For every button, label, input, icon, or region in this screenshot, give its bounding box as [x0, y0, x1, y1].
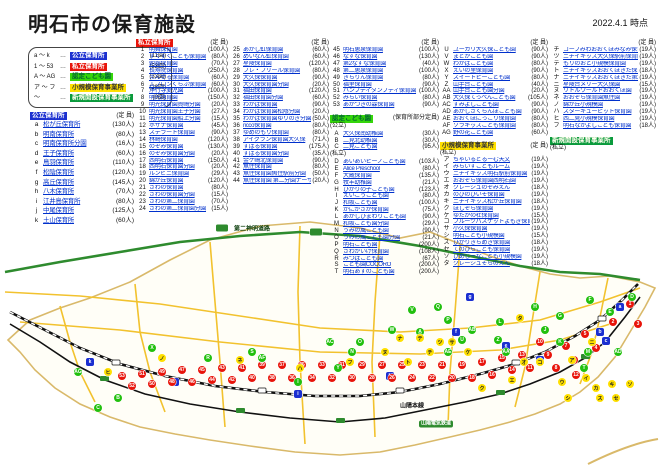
map-marker-pri: 23: [418, 361, 426, 369]
map-marker-sho: ク: [478, 384, 486, 392]
facility-name-link[interactable]: 錦が丘保育園: [149, 178, 207, 185]
facility-id: 8: [136, 95, 149, 102]
facility-capacity: (80人): [422, 75, 439, 82]
facility-capacity: (18人): [531, 261, 548, 268]
facility-name-link[interactable]: もりのおと小規模保育園: [563, 61, 638, 68]
map-marker-sho: ス: [596, 394, 604, 402]
facility-row: Yスイートピーこども園(80人): [440, 75, 548, 82]
facility-name-link[interactable]: あかし虹保育園: [243, 47, 311, 54]
facility-row: セてのひらこども保育園(19人): [440, 247, 548, 254]
facility-name-link[interactable]: クレーシュそらのえん: [453, 261, 530, 268]
legend-range: a ～ k: [34, 51, 60, 62]
legend-range: 1 ～ 53: [34, 62, 60, 73]
facility-id: R: [330, 256, 343, 263]
facility-row: 35わかば保育園ゆりのき分園(50人): [230, 116, 329, 123]
facility-name-link[interactable]: わかば保育園: [243, 102, 311, 109]
facility-name-link[interactable]: ニチイキッズ松が丘保育園: [453, 199, 530, 206]
facility-row: P明石こども園(200人): [330, 242, 439, 249]
map-marker-pri: 39: [258, 361, 266, 369]
facility-capacity: (45人): [211, 123, 228, 130]
facility-name-link[interactable]: 山手台こども園分園: [453, 88, 530, 95]
facility-capacity: (60人): [531, 130, 548, 137]
map-marker-sho: サ: [448, 338, 456, 346]
facility-name-link[interactable]: 野の花こども園: [453, 130, 530, 137]
facility-row: 29大久保保育園(90人): [230, 75, 329, 82]
facility-name-link[interactable]: ニチイキッズおおくぼきた第2保育園: [563, 75, 638, 82]
facility-name-link[interactable]: ゆたかの杜保育園: [453, 213, 530, 220]
facility-id: I: [330, 193, 343, 200]
map-marker-sho: ヒ: [104, 368, 112, 376]
facility-capacity: (175人): [309, 144, 329, 151]
facility-name-link[interactable]: ステラート保育園: [149, 130, 210, 137]
facility-name-link[interactable]: 金ケ崎北保育園: [243, 158, 311, 165]
map-marker-pub: f: [452, 328, 460, 336]
facility-name-link[interactable]: あいあいピーノこども園: [343, 159, 418, 166]
facility-id: G: [330, 180, 343, 187]
map-marker-pri: 17: [478, 358, 486, 366]
facility-name-link[interactable]: 福里保育園: [343, 82, 421, 89]
facility-name-link[interactable]: コープみわおおくぼみなみ保育園: [563, 47, 638, 54]
map-marker-nin: I: [294, 378, 302, 386]
map-marker-sho: ナ: [396, 334, 404, 342]
facility-capacity: (90人): [422, 214, 439, 221]
facility-name-link[interactable]: 鳥羽保育所: [43, 158, 112, 168]
facility-name-link[interactable]: えんぜる保育園: [149, 75, 210, 82]
facility-name-link[interactable]: えいの里保育園: [453, 68, 530, 75]
facility-name-link[interactable]: 王子保育所: [43, 149, 115, 159]
map-marker-sho: テ: [416, 334, 424, 342]
facility-name-link[interactable]: 和坂こども園分園: [343, 221, 421, 228]
facility-id: f: [30, 168, 43, 178]
facility-capacity: (70人): [211, 61, 228, 68]
facility-id: 38: [230, 137, 243, 144]
facility-name-link[interactable]: 二見こども園: [343, 144, 421, 151]
facility-name-link[interactable]: フルーツバスケットよもぎ保育園: [453, 219, 530, 226]
facility-name-link[interactable]: 林崎保育園: [149, 137, 207, 144]
facility-name-link[interactable]: 魚住保育園魚住駅前分園: [243, 171, 311, 178]
facility-name-link[interactable]: 明光保育園: [149, 95, 207, 102]
facility-id: セ: [440, 247, 453, 254]
facility-row: C二見こども園(95人): [330, 144, 439, 151]
facility-name-link[interactable]: 明光保育園貴崎分園: [149, 102, 210, 109]
facility-capacity: (70人): [116, 187, 134, 197]
facility-id: Z: [440, 82, 453, 89]
facility-name-link[interactable]: 明石恵泉保育園: [343, 47, 418, 54]
map-marker-pri: 16: [488, 371, 496, 379]
facility-id: 46: [330, 54, 343, 61]
facility-name-link[interactable]: アイグラン保育園大久保: [243, 137, 311, 144]
map-marker-pri: 52: [128, 382, 136, 390]
facility-name-link[interactable]: 大久保保育園: [243, 75, 311, 82]
facility-capacity: (20人): [211, 151, 228, 158]
facility-name-link[interactable]: かにがさか保育園: [343, 207, 421, 214]
facility-name-link[interactable]: 明石なかよしこども保育園: [563, 123, 638, 130]
facility-id: d: [30, 149, 43, 159]
capacity-header: (定 員): [116, 112, 134, 120]
facility-capacity: (135人): [419, 173, 439, 180]
facility-id: サ: [440, 226, 453, 233]
map-marker-nin: W: [388, 326, 396, 334]
facility-capacity: (100人): [419, 47, 439, 54]
map-marker-pri: 51: [138, 370, 146, 378]
map-marker-pri: 24: [408, 374, 416, 382]
facility-row: 3朝霧保育園(70人): [136, 61, 228, 68]
facility-name-link[interactable]: うみの風こども園: [343, 228, 421, 235]
map-marker-nin: B: [114, 394, 122, 402]
facility-row: Oうみの風こども園分園(21人): [330, 235, 439, 242]
map-marker-sho: コ: [536, 358, 544, 366]
facility-name-link[interactable]: 朝霧保育園: [149, 61, 210, 68]
facility-name-link[interactable]: のびのびいそ保育園: [453, 192, 530, 199]
facility-name-link[interactable]: フレ・フリール保育園: [243, 68, 311, 75]
facility-row: 5えんぜる保育園(60人): [136, 75, 228, 82]
facility-id: 30: [230, 82, 243, 89]
facility-name-link[interactable]: 明南保育所: [43, 130, 115, 140]
facility-name-link[interactable]: こども園COCORO: [343, 262, 418, 269]
facility-capacity: (200人): [419, 269, 439, 276]
map-marker-pub: k: [86, 358, 94, 366]
facility-row: 26めいなん虹保育園(60人): [230, 54, 329, 61]
facility-id: W: [440, 61, 453, 68]
facility-row: 13ステラート保育園(90人): [136, 130, 228, 137]
facility-name-link[interactable]: さわの第二保育園: [149, 199, 210, 206]
facility-name-link[interactable]: 牧羊幼稚園: [343, 180, 421, 187]
facility-name-link[interactable]: 明石こども園: [343, 242, 418, 249]
facility-id: B: [330, 138, 343, 145]
section-nintei-col4: (定 員) Uユーカリ大久保こども園(90人)Vまどかこども園(90人)Wわかば…: [440, 39, 548, 268]
facility-id: 20: [136, 178, 149, 185]
facility-name-link[interactable]: エプロンくらぶ保育園: [149, 82, 210, 89]
facility-name-link[interactable]: 大蔵保育園: [343, 173, 418, 180]
facility-name-link[interactable]: てのひらこども保育園: [453, 247, 530, 254]
facility-name-link[interactable]: みつばこども園: [343, 256, 421, 263]
facility-id: 2: [136, 54, 149, 61]
facility-row: 16のぞみ保育園分園(20人): [136, 151, 228, 158]
facility-name-link[interactable]: 明光保育園王子分園: [149, 109, 210, 116]
map-marker-pri: 44: [208, 376, 216, 384]
facility-row: 24さわの第二保育園分園(15人): [136, 206, 228, 213]
facility-name-link[interactable]: 山手台こども園: [453, 82, 530, 89]
facility-name-link[interactable]: 魚住保育園: [243, 164, 311, 171]
facility-name-link[interactable]: スターキューピット保育園: [563, 109, 638, 116]
map-marker-nin: G: [556, 312, 564, 320]
map-marker-pri: 22: [428, 374, 436, 382]
facility-name-link[interactable]: 和坂こども園: [343, 200, 418, 207]
new-facility-header: 新規開設保育事業所: [550, 137, 613, 145]
facility-name-link[interactable]: ニチイキッズおおくぼきた保育園: [563, 68, 638, 75]
map-marker-sho: カ: [592, 384, 600, 392]
map-marker-pri: 21: [438, 361, 446, 369]
facility-row: Lあかしひまわりこども園(90人): [330, 214, 439, 221]
facility-id: 40: [230, 151, 243, 158]
facility-capacity: (90人): [211, 130, 228, 137]
facility-id: 1: [136, 47, 149, 54]
shokibo-header: 小規模保育事業所: [440, 142, 496, 150]
facility-capacity: (80人): [531, 75, 548, 82]
facility-id: 22: [136, 192, 149, 199]
facility-name-link[interactable]: 魚住保育園 第二分園ナーサリー: [243, 178, 311, 185]
map-marker-pri: 48: [168, 378, 176, 386]
facility-name-link[interactable]: あかしひまわりこども園: [343, 214, 421, 221]
facility-id: 11: [136, 116, 149, 123]
map-marker-sho: セ: [612, 394, 620, 402]
facility-id: F: [330, 173, 343, 180]
facility-name-link[interactable]: おおぞら保育園西明石園: [453, 178, 530, 185]
facility-id: AC: [440, 102, 453, 109]
facility-capacity: (19人): [639, 116, 656, 123]
facility-name-link[interactable]: ニチイキッズ大久保駅前保育園: [563, 54, 638, 61]
facility-row: フ明石なかよしこども保育園(18人): [550, 123, 656, 130]
legend-category-label: 新規開設保育事業所: [70, 94, 133, 102]
facility-id: ト: [550, 68, 563, 75]
facility-name-link[interactable]: 明舞保育園: [149, 47, 207, 54]
facility-capacity: (90人): [422, 102, 439, 109]
facility-name-link[interactable]: まどかこども園: [453, 54, 530, 61]
facility-name-link[interactable]: ひかりきらめき保育園: [453, 240, 530, 247]
facility-name-link[interactable]: さわの保育園: [149, 185, 210, 192]
facility-name-link[interactable]: 錦が丘小規模園: [563, 102, 638, 109]
facility-name-link[interactable]: のぞみ保育園: [149, 144, 207, 151]
map-marker-nin: T: [580, 364, 588, 372]
facility-row: 21さわの保育園(80人): [136, 185, 228, 192]
facility-capacity: (50人): [312, 116, 329, 123]
facility-id: 19: [136, 171, 149, 178]
facility-name-link[interactable]: めいなん虹保育園: [243, 54, 311, 61]
facility-name-link[interactable]: さわの保育園分園: [149, 192, 210, 199]
legend-category-label: 公立保育所: [70, 52, 107, 60]
facility-name-link[interactable]: ホザナ保育園: [149, 123, 210, 130]
facility-row: AG野の花こども園(60人): [440, 130, 548, 137]
facility-name-link[interactable]: 星陵保育園: [243, 61, 308, 68]
facility-id: 37: [230, 130, 243, 137]
facility-row: f松陰保育所(120人): [30, 168, 134, 178]
facility-name-link[interactable]: 西明石保育園: [149, 158, 207, 165]
map-marker-pri: 19: [458, 361, 466, 369]
facility-row: 48第二恵泉保育園(100人): [330, 68, 439, 75]
facility-id: 18: [136, 164, 149, 171]
facility-name-link[interactable]: 松陰保育所: [43, 168, 111, 178]
facility-name-link[interactable]: 大久保南幼稚園: [343, 131, 421, 138]
facility-capacity: (60人): [116, 216, 134, 226]
facility-name-link[interactable]: クレーシュのぞみえん: [453, 185, 530, 192]
facility-name-link[interactable]: わかば保育園ゆりのき分園: [243, 116, 311, 123]
map-marker-sho: シ: [564, 394, 572, 402]
map-marker-pri: 3: [634, 320, 642, 328]
facility-name-link[interactable]: 中尾保育所: [43, 206, 111, 216]
facility-name-link[interactable]: みらい保育園: [343, 95, 421, 102]
facility-name-link[interactable]: 松が丘保育所: [43, 120, 111, 130]
facility-name-link[interactable]: 浄行寺愛児園: [149, 88, 207, 95]
map-marker-pri: 37: [278, 361, 286, 369]
facility-name-link[interactable]: 八木保育所: [43, 187, 115, 197]
facility-row: 39すばる保育園(175人): [230, 144, 329, 151]
map-marker-pri: 53: [118, 372, 126, 380]
facility-name-link[interactable]: えいこうこども園: [343, 193, 421, 200]
facility-name-link[interactable]: 福田保育園分園: [243, 95, 311, 102]
map-marker-pri: 29: [358, 361, 366, 369]
facility-id: g: [30, 178, 43, 188]
facility-id: 3: [136, 61, 149, 68]
facility-capacity: (100人): [208, 47, 228, 54]
facility-name-link[interactable]: 土山保育所: [43, 216, 115, 226]
facility-name-link[interactable]: ユーカリ大久保こども園: [453, 47, 530, 54]
facility-name-link[interactable]: 星陵台メリー大久保園: [563, 82, 638, 89]
facility-name-link[interactable]: すばる保育園: [243, 144, 308, 151]
map-marker-pri: 50: [148, 380, 156, 388]
facility-id: ア: [440, 157, 453, 164]
facility-name-link[interactable]: すくすくこども保育園: [149, 54, 210, 61]
facility-id: 32: [230, 95, 243, 102]
facility-id: 14: [136, 137, 149, 144]
facility-name-link[interactable]: すみよしこども園: [453, 102, 530, 109]
facility-name-link[interactable]: 小久保保育園: [453, 226, 530, 233]
facility-name-link[interactable]: ひかりの子こども園: [343, 187, 418, 194]
facility-row: 14林崎保育園(120人): [136, 137, 228, 144]
facility-name-link[interactable]: 大久保てっぺんこども園: [453, 95, 527, 102]
facility-name-link[interactable]: ちゃいるどるーむ天文: [453, 157, 530, 164]
nintei-note: (保育所部分定員): [393, 115, 439, 123]
map-marker-sho: オ: [520, 358, 528, 366]
facility-id: 27: [230, 61, 243, 68]
facility-capacity: (95人): [422, 144, 439, 151]
facility-id: 4: [136, 68, 149, 75]
facility-name-link[interactable]: 高丘保育所: [43, 178, 111, 188]
facility-name-link[interactable]: ニチイキッズ明石駅前保育園: [453, 171, 530, 178]
facility-row: 4長寿院保育園(250人): [136, 68, 228, 75]
facility-id: AE: [440, 116, 453, 123]
facility-capacity: (18人): [531, 199, 548, 206]
facility-name-link[interactable]: ほしぞら保育園: [453, 206, 530, 213]
facility-row: 37ゆめのもり保育園(80人): [230, 130, 329, 137]
facility-row: i江井島保育所(80人): [30, 197, 134, 207]
facility-name-link[interactable]: 第2なずな保育園: [343, 61, 421, 68]
facility-row: AFソラキッズこども保育園(80人): [440, 123, 548, 130]
facility-id: 15: [136, 144, 149, 151]
facility-name-link[interactable]: 福田保育園: [243, 88, 308, 95]
facility-id: K: [330, 207, 343, 214]
facility-name-link[interactable]: わかばこども園: [453, 61, 530, 68]
facility-name-link[interactable]: わかば保育園松陰分園: [243, 109, 311, 116]
facility-name-link[interactable]: 大久保保育園分園: [243, 82, 311, 89]
facility-name-link[interactable]: ルンビニ保育園: [149, 171, 210, 178]
facility-name-link[interactable]: 明石あすのこども園: [343, 269, 418, 276]
facility-row: テもりのおと小規模保育園(19人): [550, 61, 656, 68]
map-marker-pri: 42: [228, 376, 236, 384]
facility-capacity: (200人): [419, 242, 439, 249]
facility-name-link[interactable]: なずな保育園: [343, 54, 418, 61]
facility-name-link[interactable]: うみの風こども園分園: [343, 235, 421, 242]
map-marker-nin: Z: [494, 336, 502, 344]
facility-name-link[interactable]: おおくぼにっこり保育園: [453, 116, 530, 123]
facility-capacity: (125人): [112, 206, 134, 216]
facility-id: Q: [330, 249, 343, 256]
facility-capacity: (15人): [211, 206, 228, 213]
facility-row: 27星陵保育園(120人): [230, 61, 329, 68]
facility-id: 5: [136, 75, 149, 82]
facility-capacity: (80人): [312, 68, 329, 75]
facility-capacity: (108人): [419, 249, 439, 256]
facility-capacity: (80人): [211, 54, 228, 61]
facility-name-link[interactable]: Alice Preschool: [343, 166, 421, 173]
facility-name-link[interactable]: 長寿院保育園: [149, 68, 207, 75]
facility-name-link[interactable]: ハンプティダンプティ保育園: [343, 88, 418, 95]
facility-name-link[interactable]: あかしさくらんぼこども園: [453, 109, 530, 116]
facility-capacity: (80人): [211, 185, 228, 192]
facility-capacity: (71人): [312, 137, 329, 144]
facility-id: 28: [230, 68, 243, 75]
facility-name-link[interactable]: おおぞら保育園魚住園: [563, 95, 638, 102]
facility-name-link[interactable]: きらりん保育園: [343, 75, 421, 82]
facility-row: Vまどかこども園(90人): [440, 54, 548, 61]
capacity-header: (定 員): [330, 39, 439, 47]
facility-name-link[interactable]: さわの第二保育園分園: [149, 206, 210, 213]
map-marker-nin: F: [586, 296, 594, 304]
facility-name-link[interactable]: ソラキッズこども保育園: [453, 123, 530, 130]
facility-id: キ: [440, 199, 453, 206]
facility-name-link[interactable]: あかつきの森保育園: [343, 102, 421, 109]
facility-capacity: (60人): [211, 75, 228, 82]
facility-name-link[interactable]: 二見北幼稚園: [343, 138, 421, 145]
facility-capacity: (30人): [422, 131, 439, 138]
facility-id: オ: [440, 185, 453, 192]
facility-id: 26: [230, 54, 243, 61]
facility-name-link[interactable]: すばる保育園分園: [243, 151, 311, 158]
public-header: 公立保育所: [30, 112, 67, 120]
facility-name-link[interactable]: さわがいけ保育園: [343, 249, 418, 256]
facility-name-link[interactable]: 第二恵泉保育園: [343, 68, 418, 75]
facility-id: 51: [330, 88, 343, 95]
facility-capacity: (60人): [312, 54, 329, 61]
page: 明石市の保育施設 2022.4.1 時点 a ～ k…公立保育所(11園)1 ～…: [0, 0, 660, 467]
facility-name-link[interactable]: リトルワールドおおくぼ園: [563, 88, 638, 95]
facility-id: 44: [230, 178, 243, 185]
map-marker-pub: g: [466, 293, 474, 301]
facility-capacity: (19人): [531, 171, 548, 178]
map-marker-nin: AC: [326, 338, 334, 346]
facility-id: 23: [136, 199, 149, 206]
facility-id: 39: [230, 144, 243, 151]
facility-name-link[interactable]: 西明石保育園分園: [149, 164, 210, 171]
facility-name-link[interactable]: みらいずこどもルーム: [453, 164, 530, 171]
map-marker-sho: タ: [516, 314, 524, 322]
facility-capacity: (60人): [116, 149, 134, 159]
facility-row: ナニチイキッズおおくぼきた第2保育園(19人): [550, 75, 656, 82]
map-marker-pri: 30: [348, 374, 356, 382]
facility-row: タクレーシュそらのえん(18人): [440, 261, 548, 268]
facility-row: b明南保育所(80人): [30, 130, 134, 140]
facility-name-link[interactable]: 明光保育園船上分園: [149, 116, 210, 123]
facility-row: 1明舞保育園(100人): [136, 47, 228, 54]
facility-id: h: [30, 187, 43, 197]
facility-row: 15のぞみ保育園(130人): [136, 144, 228, 151]
facility-name-link[interactable]: スイートピーこども園: [453, 75, 530, 82]
facility-row: ツニチイキッズ大久保駅前保育園(19人): [550, 54, 656, 61]
facility-name-link[interactable]: のぞみ保育園分園: [149, 151, 210, 158]
facility-capacity: (16人): [116, 139, 134, 149]
facility-name-link[interactable]: 明石こども小規模園: [453, 233, 530, 240]
facility-row: 11明光保育園船上分園(15人): [136, 116, 228, 123]
facility-name-link[interactable]: ricco保育園: [243, 123, 311, 130]
facility-row: 53あかつきの森保育園(90人): [330, 102, 439, 109]
map-marker-nin: E: [606, 308, 614, 316]
map-marker-pri: 33: [318, 361, 326, 369]
facility-name-link[interactable]: 西二見小規模保育園: [563, 116, 638, 123]
facility-name-link[interactable]: 江井島保育所: [43, 197, 115, 207]
facility-name-link[interactable]: 明南保育所分園: [43, 139, 115, 149]
map-marker-nin: R: [204, 354, 212, 362]
facility-name-link[interactable]: ひめじーなこども小規模園: [453, 254, 530, 261]
facility-name-link[interactable]: ゆめのもり保育園: [243, 130, 311, 137]
